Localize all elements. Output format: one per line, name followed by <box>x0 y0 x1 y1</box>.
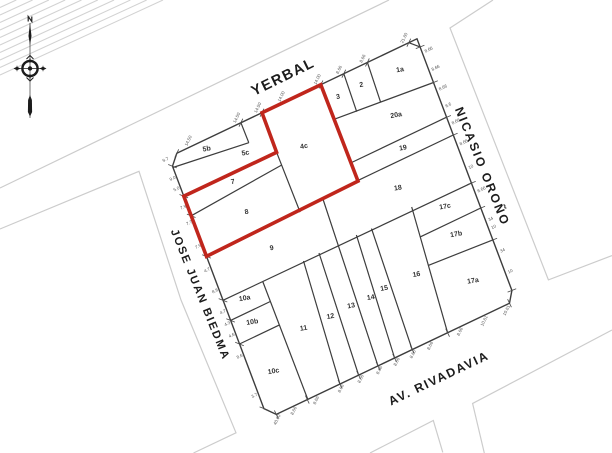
svg-text:15: 15 <box>380 285 389 293</box>
svg-text:1a: 1a <box>396 66 405 74</box>
svg-text:5c: 5c <box>241 149 250 157</box>
svg-text:12: 12 <box>326 313 335 321</box>
svg-text:13: 13 <box>347 302 356 310</box>
svg-text:11: 11 <box>299 325 308 333</box>
svg-text:18: 18 <box>393 184 402 192</box>
svg-text:14: 14 <box>366 294 375 302</box>
svg-text:4c: 4c <box>300 143 309 151</box>
svg-text:19: 19 <box>399 144 408 152</box>
svg-text:5b: 5b <box>202 145 211 153</box>
svg-text:16: 16 <box>412 271 421 279</box>
